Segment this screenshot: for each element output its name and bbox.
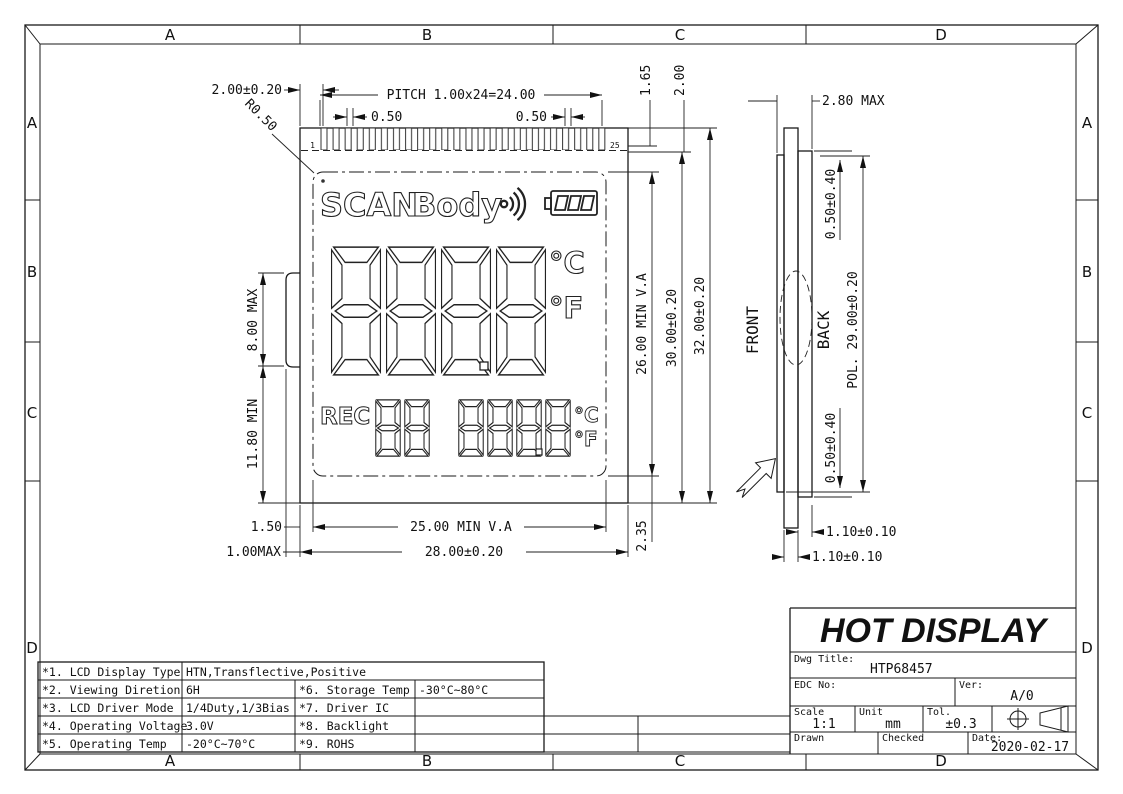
main-digit-2 bbox=[387, 247, 436, 375]
dim-lower-height: 11.80 MIN bbox=[246, 366, 263, 503]
dim-height-32: 32.00±0.20 bbox=[693, 128, 710, 503]
zone-top-c: C bbox=[675, 26, 685, 44]
dim-height-30: 30.00±0.20 bbox=[665, 152, 682, 503]
lcd-content: SCAN Body °C ° bbox=[320, 186, 599, 456]
sub-degree-c-label: °C bbox=[574, 403, 599, 427]
sub-digit-1 bbox=[376, 400, 400, 456]
dim-va-height: 26.00 MIN V.A bbox=[635, 172, 652, 476]
dim-pitch: PITCH 1.00x24=24.00 bbox=[320, 88, 602, 126]
spec-row3-label2: *7. Driver IC bbox=[299, 701, 389, 715]
spec-row2-label: *2. Viewing Diretion bbox=[42, 683, 180, 697]
dim-pin-width-right: 0.50 bbox=[516, 108, 585, 126]
tolerance-value: ±0.3 bbox=[945, 717, 976, 732]
sub-digit-5 bbox=[517, 400, 541, 456]
glass-layer-front bbox=[784, 128, 798, 528]
main-digit-1 bbox=[332, 247, 381, 375]
spec-table-rows: *1. LCD Display Type HTN,Transflective,P… bbox=[42, 665, 488, 751]
company-name: HOT DISPLAY bbox=[820, 612, 1049, 650]
unit-label: Unit bbox=[859, 707, 883, 718]
signal-icon bbox=[501, 188, 525, 220]
checked-label: Checked bbox=[882, 733, 924, 744]
spec-row2-label2: *6. Storage Temp bbox=[299, 683, 410, 697]
zone-bottom-d: D bbox=[935, 752, 947, 770]
glass-layer-back bbox=[798, 151, 812, 497]
pin-array bbox=[318, 128, 608, 150]
dim-va-width: 25.00 MIN V.A bbox=[313, 520, 606, 535]
date-value: 2020-02-17 bbox=[991, 740, 1069, 755]
dim-pitch-text: PITCH 1.00x24=24.00 bbox=[387, 88, 536, 103]
zone-left-c: C bbox=[27, 404, 37, 422]
spec-row1-value: HTN,Transflective,Positive bbox=[186, 665, 366, 679]
dim-va-height-text: 26.00 MIN V.A bbox=[635, 273, 650, 375]
main-digit-3 bbox=[442, 247, 491, 375]
view-direction-arrow-icon bbox=[732, 451, 784, 503]
spec-row5-label2: *9. ROHS bbox=[299, 737, 354, 751]
title-block: HOT DISPLAY Dwg Title: HTP68457 EDC No: … bbox=[790, 608, 1076, 755]
body-label: Body bbox=[412, 186, 502, 224]
dim-radius: R0.50 bbox=[241, 96, 314, 173]
dim-thickness-text: 2.80 MAX bbox=[822, 94, 885, 109]
dim-235-text: 2.35 bbox=[635, 520, 650, 551]
dim-100max: 1.00MAX bbox=[226, 545, 300, 560]
zone-top-a: A bbox=[165, 26, 176, 44]
dim-165-text: 1.65 bbox=[639, 65, 654, 96]
spec-row4-label: *4. Operating Voltage bbox=[42, 719, 187, 733]
unit-value: mm bbox=[885, 717, 901, 732]
zone-left-a: A bbox=[27, 114, 38, 132]
spec-row5-value: -20°C~70°C bbox=[186, 737, 255, 751]
break-mark bbox=[780, 271, 812, 365]
dim-165: 1.65 bbox=[628, 65, 657, 146]
dim-pin-width-left: 0.50 bbox=[333, 108, 402, 126]
spec-row4-label2: *8. Backlight bbox=[299, 719, 389, 733]
pin1-dot bbox=[321, 179, 325, 183]
dim-height-32-text: 32.00±0.20 bbox=[693, 277, 708, 355]
sub-decimal-point bbox=[536, 449, 542, 455]
dim-pin-width-left-text: 0.50 bbox=[371, 110, 402, 125]
main-digit-4 bbox=[497, 247, 546, 375]
side-view: FRONT BACK 2.80 MAX 0.50±0.40 bbox=[732, 94, 897, 565]
dim-150: 1.50 bbox=[251, 520, 300, 535]
dim-height-30-text: 30.00±0.20 bbox=[665, 289, 680, 367]
spec-row3-value: 1/4Duty,1/3Bias bbox=[186, 701, 290, 715]
dim-glass-lower-text: 1.10±0.10 bbox=[812, 550, 882, 565]
dim-width-28-text: 28.00±0.20 bbox=[425, 545, 503, 560]
dim-width-28: 28.00±0.20 bbox=[300, 545, 628, 560]
zone-right-d: D bbox=[1081, 639, 1093, 657]
spec-row2-value: 6H bbox=[186, 683, 200, 697]
sub-digit-6 bbox=[546, 400, 570, 456]
dim-va-width-text: 25.00 MIN V.A bbox=[410, 520, 512, 535]
dwg-title-label: Dwg Title: bbox=[794, 654, 854, 665]
zone-bottom-b: B bbox=[422, 752, 432, 770]
main-digits bbox=[332, 247, 546, 375]
spec-row5-label: *5. Operating Temp bbox=[42, 737, 167, 751]
dim-radius-text: R0.50 bbox=[241, 96, 279, 134]
dim-pol-top-text: 0.50±0.40 bbox=[824, 169, 839, 239]
sub-digit-2 bbox=[405, 400, 429, 456]
dim-100max-text: 1.00MAX bbox=[226, 545, 281, 560]
dim-thickness: 2.80 MAX bbox=[748, 94, 885, 153]
zone-bottom-a: A bbox=[165, 752, 176, 770]
edc-no-label: EDC No: bbox=[794, 680, 836, 691]
spec-row3-label: *3. LCD Driver Mode bbox=[42, 701, 174, 715]
version-label: Ver: bbox=[959, 680, 983, 691]
back-side-label: BACK bbox=[814, 310, 833, 349]
zone-left-d: D bbox=[26, 639, 38, 657]
front-view: 1 25 SCAN Body bbox=[212, 65, 717, 560]
zone-right-a: A bbox=[1082, 114, 1093, 132]
dim-bump-height: 8.00 MAX bbox=[246, 273, 263, 366]
battery-icon bbox=[545, 191, 597, 215]
dim-pin-width-right-text: 0.50 bbox=[516, 110, 547, 125]
dim-pol-bottom-text: 0.50±0.40 bbox=[824, 413, 839, 483]
sub-digit-4 bbox=[488, 400, 512, 456]
drawing-sheet: A B C D A B C D A B C D A B C D 1 25 SCA bbox=[0, 0, 1123, 794]
dim-glass-upper-text: 1.10±0.10 bbox=[826, 525, 896, 540]
dim-pol-bottom: 0.50±0.40 bbox=[814, 408, 852, 497]
dim-bump-height-text: 8.00 MAX bbox=[246, 289, 261, 352]
dim-200-text: 2.00 bbox=[673, 65, 688, 96]
dim-lead-offset-text: 2.00±0.20 bbox=[212, 83, 282, 98]
left-bump bbox=[286, 273, 300, 367]
rec-label: REC bbox=[320, 404, 370, 430]
spec-row2-value2: -30°C~80°C bbox=[419, 683, 488, 697]
dim-150-text: 1.50 bbox=[251, 520, 282, 535]
degree-f-label: °F bbox=[549, 291, 583, 325]
sub-degree-f-label: °F bbox=[574, 427, 598, 451]
dim-pol-top: 0.50±0.40 bbox=[814, 151, 852, 240]
degree-c-label: °C bbox=[549, 246, 585, 280]
dim-lower-height-text: 11.80 MIN bbox=[246, 399, 261, 469]
engineering-drawing: A B C D A B C D A B C D A B C D 1 25 SCA bbox=[0, 0, 1123, 794]
projection-symbol-icon bbox=[1007, 706, 1068, 732]
zone-right-c: C bbox=[1082, 404, 1092, 422]
spec-table: *1. LCD Display Type HTN,Transflective,P… bbox=[38, 662, 790, 752]
zone-top-b: B bbox=[422, 26, 432, 44]
zone-top-d: D bbox=[935, 26, 947, 44]
spec-row1-label: *1. LCD Display Type bbox=[42, 665, 181, 679]
main-decimal-point bbox=[480, 362, 488, 370]
sub-digits bbox=[376, 400, 570, 456]
front-side-label: FRONT bbox=[743, 306, 762, 355]
sub-digit-3 bbox=[459, 400, 483, 456]
spec-row4-value: 3.0V bbox=[186, 719, 214, 733]
version-value: A/0 bbox=[1010, 689, 1033, 704]
zone-bottom-c: C bbox=[675, 752, 685, 770]
dim-235: 2.35 bbox=[635, 476, 652, 552]
drawn-label: Drawn bbox=[794, 733, 824, 744]
scale-value: 1:1 bbox=[812, 717, 835, 732]
dim-pol-length-text: POL. 29.00±0.20 bbox=[846, 271, 861, 388]
scan-label: SCAN bbox=[320, 186, 418, 224]
zone-right-b: B bbox=[1082, 263, 1092, 281]
dwg-title-value: HTP68457 bbox=[870, 662, 933, 677]
pin-number-last: 25 bbox=[610, 141, 620, 150]
pin-number-first: 1 bbox=[310, 141, 315, 150]
zone-left-b: B bbox=[27, 263, 37, 281]
dim-200: 2.00 bbox=[628, 65, 691, 152]
